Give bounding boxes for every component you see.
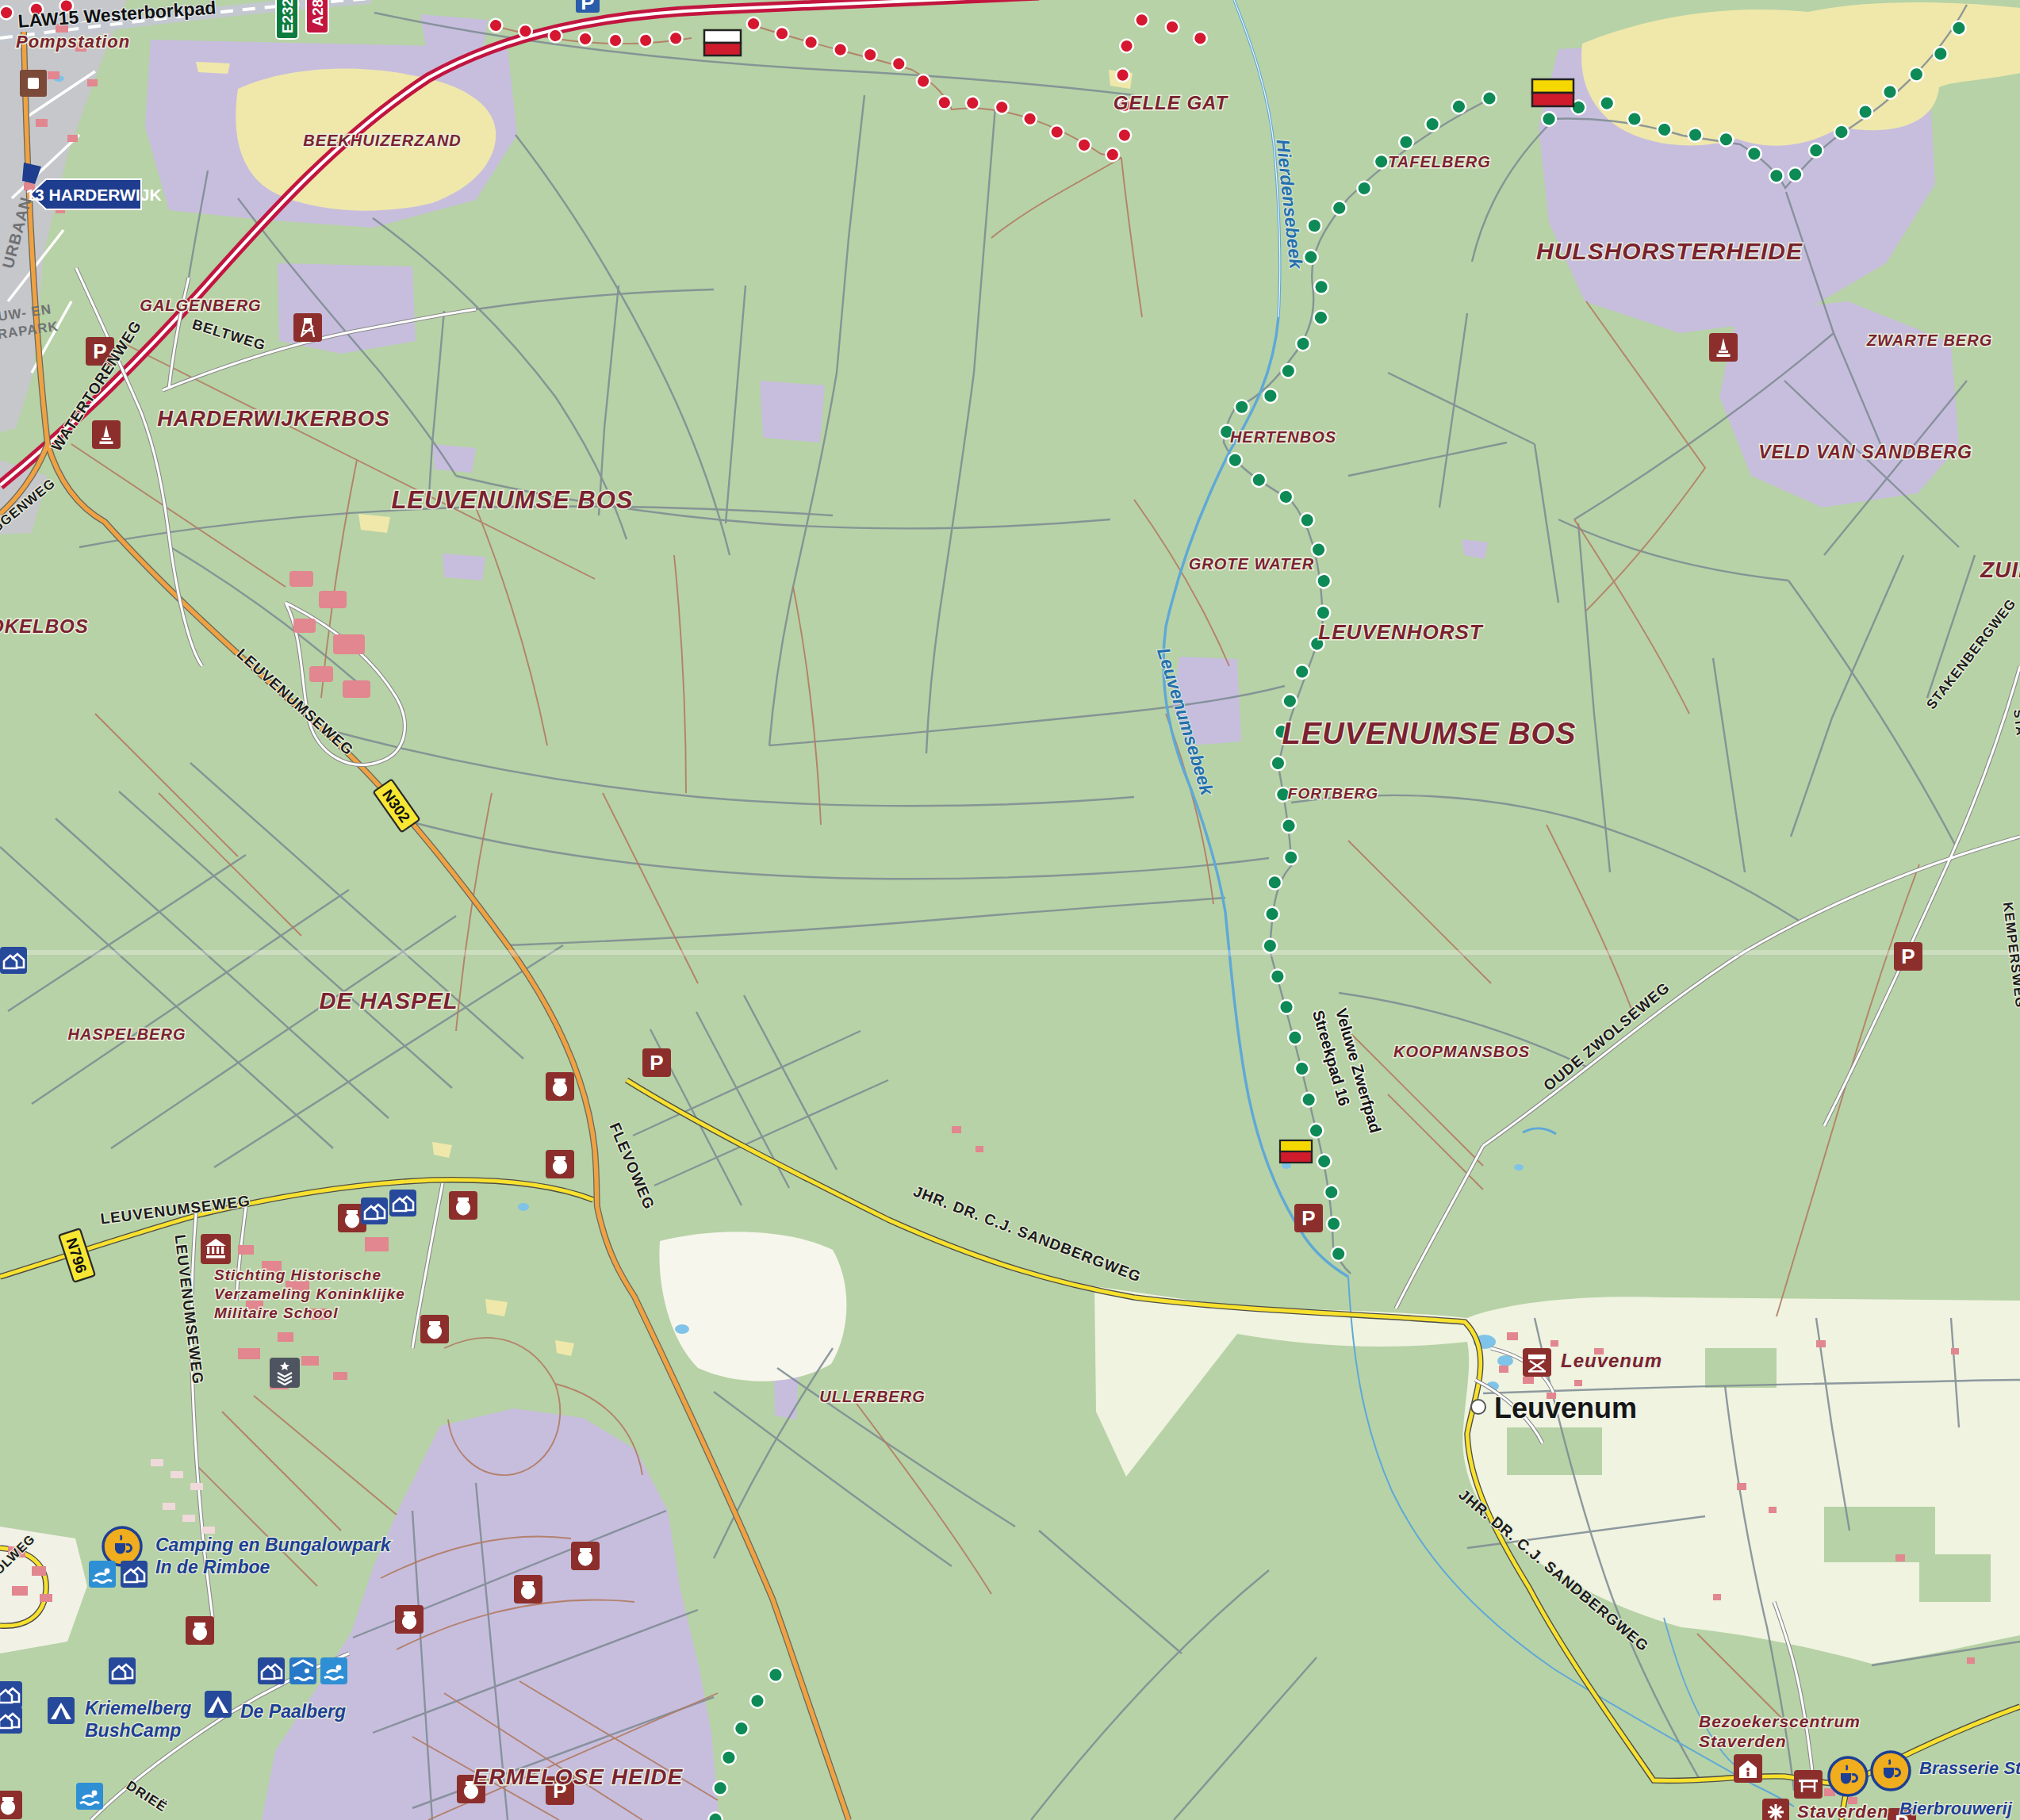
bungalow-park-icon: [389, 1190, 416, 1217]
label-leuvenum: Leuvenum: [1494, 1392, 1637, 1424]
label-beekhuizerzand: BEEKHUIZERZAND: [303, 132, 462, 149]
museum-icon: [201, 1234, 231, 1264]
label-stichting-line1: Stichting Historische: [214, 1266, 381, 1283]
campsite-icon: [48, 1697, 75, 1724]
route-flag-yellow-red: [1280, 1140, 1312, 1163]
shield-a28: A28: [306, 0, 328, 33]
swimming-icon: [76, 1783, 103, 1810]
bungalow-park-icon: [0, 1681, 22, 1708]
label-harderwijkerbos: HARDERWIJKERBOS: [157, 407, 390, 431]
swimming-icon: [320, 1657, 347, 1684]
campsite-icon: [205, 1691, 232, 1718]
cafe-icon: [1872, 1752, 1910, 1790]
label-koopmansbos: KOOPMANSBOS: [1393, 1043, 1530, 1060]
label-gelle-gat: GELLE GAT: [1113, 92, 1229, 113]
label-bierbrouwerij: Bierbrouwerij: [1899, 1799, 2013, 1818]
picnic-icon: [1794, 1770, 1823, 1799]
label-kriemelberg-line2: BushCamp: [85, 1720, 181, 1741]
burial-mound-icon: [420, 1315, 449, 1343]
label-stichting-line2: Verzameling Koninklijke: [214, 1285, 405, 1302]
pumping-station-icon: [20, 70, 47, 97]
svg-text:P: P: [581, 0, 594, 14]
bungalow-park-icon: [109, 1657, 136, 1684]
lodging-icon: [1523, 1348, 1551, 1377]
burial-mound-icon: [186, 1616, 214, 1645]
label-leuvenhorst: LEUVENHORST: [1318, 620, 1484, 644]
shield-e232: E232: [276, 0, 298, 39]
cafe-icon: [103, 1527, 141, 1565]
route-flag-yellow-red: [1532, 79, 1573, 106]
swimming-icon: [89, 1561, 116, 1588]
label-veld-van-sandberg: VELD VAN SANDBERG: [1758, 442, 1972, 462]
label-de-paalberg: De Paalberg: [240, 1701, 346, 1722]
label-leuvenum-estate: Leuvenum: [1561, 1350, 1662, 1371]
military-school-icon: [270, 1358, 300, 1388]
leuvenum-village-dot: [1471, 1400, 1485, 1414]
watchtower-icon: [293, 313, 322, 342]
bungalow-park-icon: [258, 1657, 285, 1684]
label-grote-water: GROTE WATER: [1189, 555, 1314, 573]
parking-icon: [1294, 1204, 1323, 1232]
label-pompstation: Pompstation: [16, 32, 130, 52]
route-flag-white-red: [704, 30, 741, 56]
burial-mound-icon: [571, 1542, 600, 1570]
parking-icon: [642, 1048, 671, 1077]
label-brasserie: Brasserie Sta: [1919, 1758, 2020, 1778]
label-haspelberg: HASPELBERG: [68, 1025, 186, 1043]
label-okelbos: OKELBOS: [0, 615, 89, 637]
label-hulshorsterheide: HULSHORSTERHEIDE: [1536, 238, 1803, 264]
label-zuid: ZUID: [1980, 557, 2020, 582]
burial-mound-icon: [0, 1791, 22, 1819]
map-fold-crease: [0, 950, 2020, 956]
label-hertenbos: HERTENBOS: [1230, 428, 1336, 446]
label-leuvenumse-bos: LEUVENUMSE BOS: [391, 486, 633, 514]
svg-text:E232: E232: [279, 0, 296, 33]
label-galgenberg: GALGENBERG: [140, 297, 261, 314]
label-ullerberg: ULLERBERG: [819, 1388, 925, 1405]
burial-mound-icon: [514, 1575, 542, 1604]
label-kriemelberg-line1: Kriemelberg: [85, 1698, 191, 1718]
parking-icon: [1894, 942, 1922, 971]
burial-mound-icon: [449, 1191, 477, 1220]
label-bezoekerscentrum-line2: Staverden: [1699, 1732, 1787, 1750]
topographic-map: P P: [0, 0, 2020, 1820]
monument-icon: [1709, 333, 1738, 362]
svg-text:A28: A28: [309, 0, 326, 26]
label-rimboe-line2: In de Rimboe: [155, 1557, 270, 1577]
label-leuvenumse-bos: LEUVENUMSE BOS: [1282, 717, 1577, 750]
visitor-info-icon: [1734, 1754, 1762, 1783]
bungalow-park-icon: [121, 1561, 148, 1588]
cafe-icon: [1829, 1757, 1867, 1795]
label-ermelose-heide: ERMELOSE HEIDE: [473, 1764, 684, 1789]
burial-mound-icon: [395, 1605, 424, 1634]
label-fortberg: FORTBERG: [1288, 785, 1378, 802]
label-tafelberg: TAFELBERG: [1388, 153, 1491, 171]
svg-text:13 HARDERWIJK: 13 HARDERWIJK: [25, 186, 161, 204]
label-stichting-line3: Militaire School: [214, 1305, 338, 1321]
bungalow-park-icon: [361, 1197, 388, 1224]
bungalow-park-icon: [0, 947, 27, 974]
indoor-pool-icon: [289, 1657, 316, 1684]
label-zwarte-berg: ZWARTE BERG: [1866, 331, 1992, 349]
label-de-haspel: DE HASPEL: [320, 988, 458, 1013]
burial-mound-icon: [546, 1072, 574, 1101]
burial-mound-icon: [546, 1150, 574, 1178]
estate-icon: [1762, 1799, 1789, 1820]
label-rimboe-line1: Camping en Bungalowpark: [155, 1535, 392, 1555]
map-canvas: P P: [0, 0, 2020, 1820]
parking-icon-blue: P: [576, 0, 600, 14]
bungalow-park-icon: [0, 1707, 22, 1734]
label-bezoekerscentrum-line1: Bezoekerscentrum: [1699, 1712, 1861, 1730]
label-staverden: Staverden: [1797, 1802, 1888, 1820]
monument-icon: [92, 420, 121, 449]
